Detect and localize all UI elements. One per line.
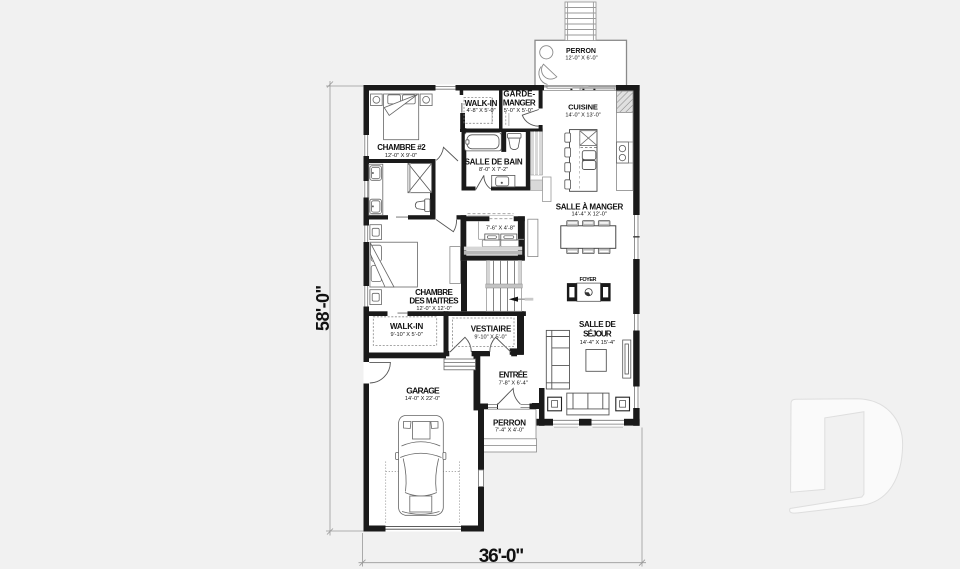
svg-text:14'-0" X 22'-0": 14'-0" X 22'-0" — [405, 396, 440, 402]
svg-text:GARDE-: GARDE- — [503, 89, 535, 98]
svg-text:12'-0" X 6'-0": 12'-0" X 6'-0" — [565, 56, 597, 62]
svg-text:CUISINE: CUISINE — [568, 102, 598, 111]
svg-text:9'-10" X 5'-0": 9'-10" X 5'-0" — [474, 335, 506, 341]
svg-text:VESTIAIRE: VESTIAIRE — [471, 325, 512, 334]
svg-text:PERRON: PERRON — [493, 418, 526, 427]
svg-text:14'-0" X 13'-0": 14'-0" X 13'-0" — [565, 112, 600, 118]
svg-text:WALK-IN: WALK-IN — [465, 99, 498, 108]
svg-text:MANGER: MANGER — [503, 99, 536, 108]
svg-text:5'-0" X 5'-0": 5'-0" X 5'-0" — [504, 108, 533, 114]
svg-text:SALLE À MANGER: SALLE À MANGER — [556, 202, 624, 211]
svg-text:SALLE DE BAIN: SALLE DE BAIN — [465, 157, 523, 166]
svg-text:FOYER: FOYER — [580, 277, 597, 283]
svg-text:SÉJOUR: SÉJOUR — [583, 330, 612, 339]
svg-text:14'-4" X 15'-4": 14'-4" X 15'-4" — [580, 340, 615, 346]
svg-text:SALLE DE: SALLE DE — [579, 320, 616, 329]
svg-text:36'-0": 36'-0" — [479, 546, 525, 567]
svg-text:DES MAITRES: DES MAITRES — [409, 297, 459, 306]
svg-text:CHAMBRE #2: CHAMBRE #2 — [377, 143, 426, 152]
svg-text:8'-0" X 7'-2": 8'-0" X 7'-2" — [479, 167, 508, 173]
svg-text:CHAMBRE: CHAMBRE — [415, 288, 453, 297]
svg-text:ENTRÉE: ENTRÉE — [499, 370, 528, 379]
svg-text:GARAGE: GARAGE — [406, 386, 440, 396]
svg-text:7'-4" X 4'-0": 7'-4" X 4'-0" — [495, 428, 524, 434]
svg-text:14'-4" X 12'-0": 14'-4" X 12'-0" — [572, 211, 607, 217]
svg-text:58'-0": 58'-0" — [313, 285, 333, 331]
svg-text:4'-8" X 5'-0": 4'-8" X 5'-0" — [466, 108, 495, 114]
svg-text:7'-8" X 6'-4": 7'-8" X 6'-4" — [499, 380, 528, 386]
svg-text:9'-10" X 5'-0": 9'-10" X 5'-0" — [390, 332, 422, 338]
svg-text:7'-6" X 4'-8": 7'-6" X 4'-8" — [486, 226, 515, 232]
svg-text:PERRON: PERRON — [566, 48, 596, 55]
svg-text:12'-0" X 12'-0": 12'-0" X 12'-0" — [416, 306, 451, 312]
svg-text:WALK-IN: WALK-IN — [390, 322, 424, 331]
svg-text:12'-0" X 9'-0": 12'-0" X 9'-0" — [385, 153, 417, 159]
